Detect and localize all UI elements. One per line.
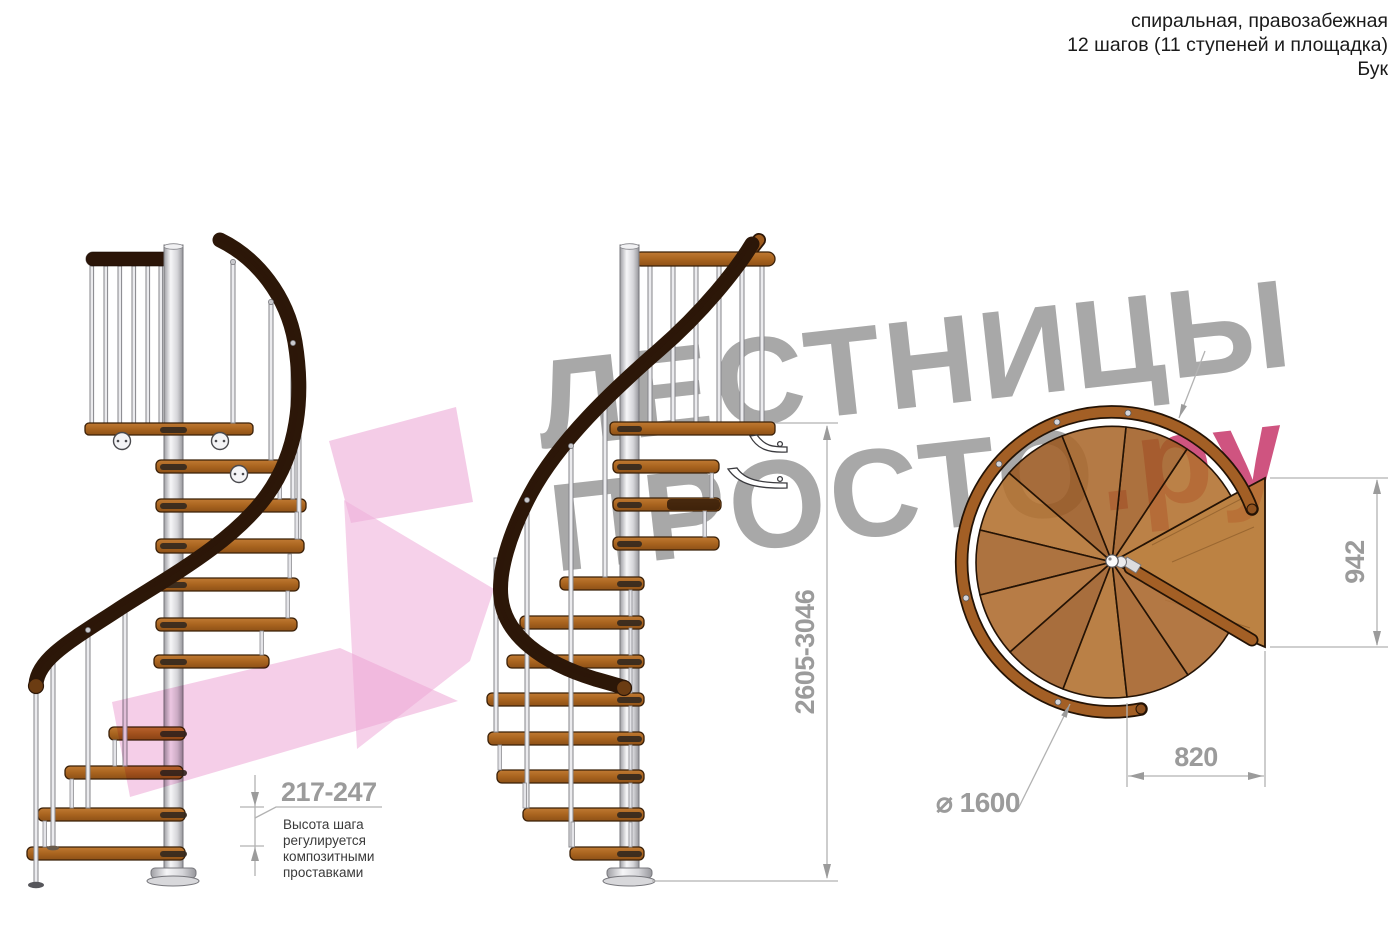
svg-text:композитными: композитными (283, 849, 374, 864)
dimension-step-height: 217-247 Высота шага регулируется компози… (240, 775, 382, 880)
svg-text:регулируется: регулируется (283, 833, 366, 848)
svg-text:проставками: проставками (283, 865, 363, 880)
header: спиральная, правозабежная 12 шагов (11 с… (1067, 9, 1388, 81)
base-flange (147, 868, 199, 886)
total-height-label: 2605-3046 (790, 589, 820, 714)
technical-drawing-canvas: 2605-3046 217-247 Высота шага регулирует… (0, 0, 1400, 951)
dimension-total-height: 2605-3046 (652, 423, 838, 881)
drawing-page: ЛЕСТНИЦЫ ПРОСТО.ру (0, 0, 1400, 951)
side-elevation-view (487, 240, 787, 886)
header-material: Бук (1067, 57, 1388, 81)
plan-pole-cap (1106, 555, 1118, 567)
svg-text:Высота шага: Высота шага (283, 817, 364, 832)
wall-brackets (728, 435, 787, 488)
header-steps: 12 шагов (11 ступеней и площадка) (1067, 33, 1388, 57)
center-pole (164, 245, 183, 875)
left-balusters (34, 607, 127, 884)
platform-depth-label: 942 (1340, 540, 1370, 584)
base-flange (603, 868, 655, 886)
platform-balusters (90, 266, 163, 423)
diameter-label: ⌀ 1600 (936, 787, 1020, 818)
header-type: спиральная, правозабежная (1067, 9, 1388, 33)
dimension-platform-depth: 942 (1270, 478, 1388, 647)
platform-width-label: 820 (1174, 742, 1218, 772)
platform-top-rail (86, 252, 172, 266)
plan-view (962, 410, 1265, 714)
step-height-label: 217-247 (281, 777, 377, 807)
front-elevation-view (27, 239, 306, 889)
